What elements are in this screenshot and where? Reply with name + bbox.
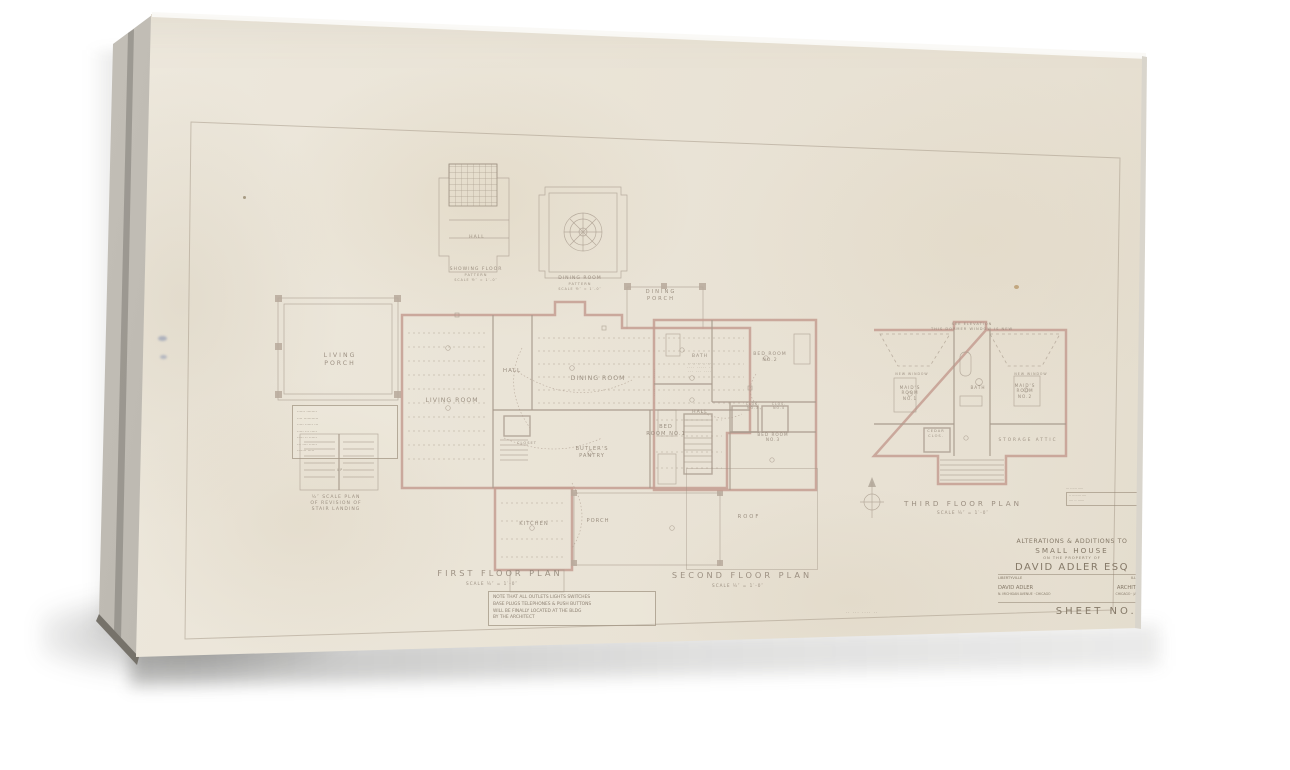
first-floor-plan-scale: SCALE ¼″ = 1′-0″ — [466, 581, 518, 586]
stair-detail-outline — [300, 434, 378, 490]
second-floor-partitions — [654, 320, 816, 490]
bath-label-2f: BATH — [692, 354, 708, 360]
label-line: ROOM NO.1 — [646, 431, 686, 438]
kitchen-label: KITCHEN — [519, 521, 548, 528]
label-line: CLOS. — [927, 434, 944, 439]
second-floor-plan-scale: SCALE ¼″ = 1′-0″ — [712, 583, 764, 588]
hall-label-2f: HALL — [692, 410, 708, 416]
roof-label: ROOF — [738, 514, 761, 521]
place-left: LIBERTYVILLE — [998, 576, 1022, 580]
bed-room-3-label: BED ROOM NO.3 — [757, 432, 788, 443]
third-floor-plan-drawing — [866, 316, 1074, 486]
dining-pattern-drawing — [537, 185, 629, 280]
stamp-box: ··· ······ ····· ·· ········ ···· ···· ·… — [1066, 487, 1140, 506]
canvas-print-front: HALL SHOWING FLOOR PATTERN SCALE ½″ = 1′… — [0, 0, 1290, 770]
architect-city: CHICAGO · JAN 19·· — [1116, 592, 1146, 596]
title-line-2: SMALL HOUSE — [998, 546, 1146, 555]
sheet-number: SHEET NO.1 — [998, 602, 1146, 617]
maids-room-2-label: MAID'S ROOM NO.2 — [1015, 383, 1036, 399]
note-line: ··· ··· ···· — [687, 370, 713, 374]
label-line: BED — [646, 424, 686, 431]
paper-tear — [356, 650, 416, 660]
hall-pattern-caption: SHOWING FLOOR PATTERN SCALE ½″ = 1′-0″ — [450, 267, 503, 282]
note-line: NOTE THAT ALL OUTLETS LIGHTS SWITCHES — [493, 595, 651, 602]
title-line-1: ALTERATIONS & ADDITIONS TO — [998, 538, 1146, 545]
cedar-clos-label: CEDAR CLOS. — [927, 429, 944, 438]
living-room-label: LIVING ROOM — [425, 397, 478, 405]
living-porch-label: LIVING PORCH — [324, 352, 357, 368]
architect-title: ARCHITECT — [1117, 585, 1146, 591]
porch-label: PORCH — [586, 518, 609, 525]
label-line: PORCH — [324, 360, 357, 368]
label-line: NO.1 — [900, 396, 921, 401]
bath-label-3f: BATH — [970, 385, 985, 390]
fixture-symbols — [658, 334, 810, 484]
maids-room-1-label: MAID'S ROOM NO.1 — [900, 385, 921, 401]
new-window-right-label: NEW WINDOW — [1014, 372, 1047, 376]
bed-room-1-label: BED ROOM NO.1 — [646, 424, 686, 438]
title-line-3: ON THE PROPERTY OF — [998, 556, 1146, 560]
living-porch-outline — [275, 295, 401, 400]
first-floor-plan-title: FIRST FLOOR PLAN — [437, 568, 562, 579]
caption-line: SCALE ½″ = 1′-0″ — [450, 278, 503, 282]
butlers-pantry-label: BUTLER'S PANTRY — [575, 446, 608, 460]
blue-smudge — [160, 355, 167, 359]
stair-up-label: UP — [337, 468, 343, 472]
note-line: THIS DORMER WINDOW IS NEW — [931, 327, 1013, 332]
third-floor-plan-scale: SCALE ¼″ = 1′-0″ — [937, 510, 989, 515]
label-line: PANTRY — [575, 453, 608, 460]
blue-smudge — [158, 336, 167, 341]
stamp-inner-box: ·· ········ ···· ···· ·· ······ — [1066, 492, 1140, 506]
wall-scribble-vertical: ···· ··· ····· — [653, 368, 657, 396]
clos-4-label: CLOS. NO.4 — [772, 402, 786, 410]
bed-room-2-label: BED ROOM NO.2 — [753, 352, 786, 364]
third-floor-partitions — [874, 330, 1066, 480]
storage-attic-label: STORAGE ATTIC — [998, 437, 1057, 442]
brown-fleck — [1014, 285, 1019, 289]
hall-pattern-room-label: HALL — [469, 235, 485, 241]
label-line: NO.3 — [757, 437, 788, 442]
third-floor-plan-title: THIRD FLOOR PLAN — [904, 499, 1022, 508]
label-line: NO.2 — [1015, 394, 1036, 399]
paper-tear — [362, 9, 406, 19]
note-line: BASE PLUGS TELEPHONES & PUSH BUTTONS — [493, 602, 651, 609]
architect-name: DAVID ADLER — [998, 585, 1033, 591]
bottom-note-box: NOTE THAT ALL OUTLETS LIGHTS SWITCHES BA… — [488, 591, 656, 626]
title-block: ALTERATIONS & ADDITIONS TO SMALL HOUSE O… — [998, 538, 1146, 617]
dining-room-label: DINING ROOM — [571, 375, 626, 383]
sloped-ceiling-dashes — [880, 334, 1060, 366]
label-line: NO.2 — [753, 358, 786, 364]
stair-detail-caption: ½″ SCALE PLAN OF REVISION OF STAIR LANDI… — [310, 495, 361, 513]
see-elevation-note: SEE ELEVATION THIS DORMER WINDOW IS NEW — [931, 322, 1013, 331]
stair-detail-drawing — [296, 430, 382, 494]
hall-label-1f: HALL — [503, 368, 521, 375]
note-line: BY THE ARCHITECT — [493, 615, 651, 622]
label-line: CEDAR — [927, 429, 944, 434]
hall-pattern-outline — [439, 164, 509, 272]
hall-floor-pattern-drawing — [437, 160, 542, 278]
clos-3-label: CLOS. NO.3 — [746, 402, 760, 410]
second-floor-walls — [654, 320, 816, 490]
label-line: LIVING — [324, 352, 357, 360]
bath-note: ········ ··· ···· ····· ·· ··· ··· ···· — [687, 362, 713, 374]
closet-label: CLOSET — [517, 441, 537, 446]
label-line: NO.3 — [746, 406, 760, 410]
new-window-left-label: NEW WINDOW — [895, 372, 928, 376]
stamp-line: ···· ·· ······ — [1069, 499, 1137, 504]
owner-name: DAVID ADLER ESQ — [998, 562, 1146, 575]
architect-address: N. MICHIGAN AVENUE · CHICAGO — [998, 592, 1051, 596]
second-floor-plan-title: SECOND FLOOR PLAN — [672, 570, 812, 581]
label-line: NO.4 — [772, 406, 786, 410]
label-line: BUTLER'S — [575, 446, 608, 453]
caption-line: STAIR LANDING — [310, 507, 361, 513]
paper-tear — [520, 645, 650, 660]
dark-fleck — [243, 196, 246, 199]
dining-pattern-outline — [539, 187, 627, 278]
pencil-note: ·· ··· ···· ·· — [846, 610, 879, 615]
